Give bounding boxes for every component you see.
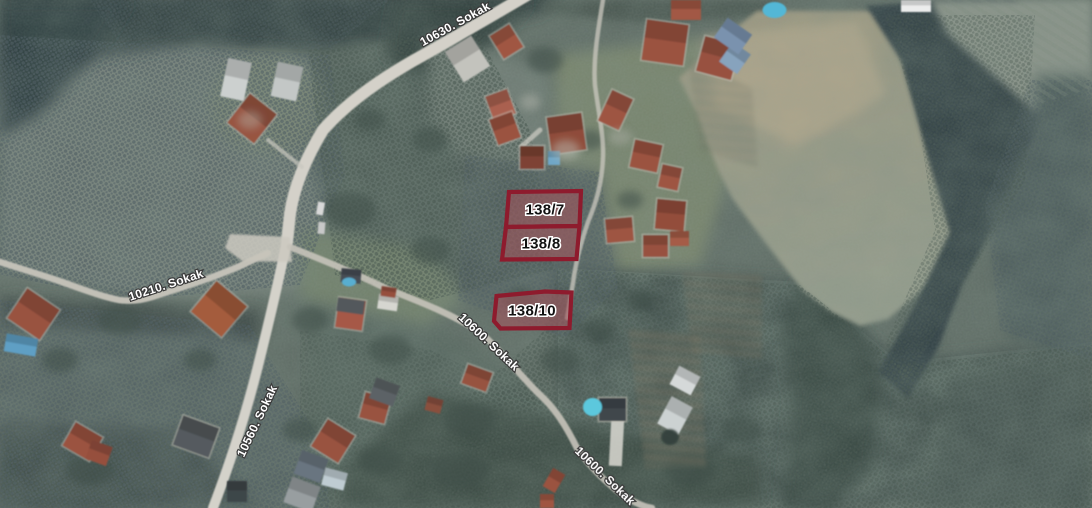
svg-text:138/7: 138/7 <box>525 202 564 219</box>
svg-text:138/8: 138/8 <box>521 236 560 253</box>
svg-text:138/10: 138/10 <box>508 303 556 320</box>
